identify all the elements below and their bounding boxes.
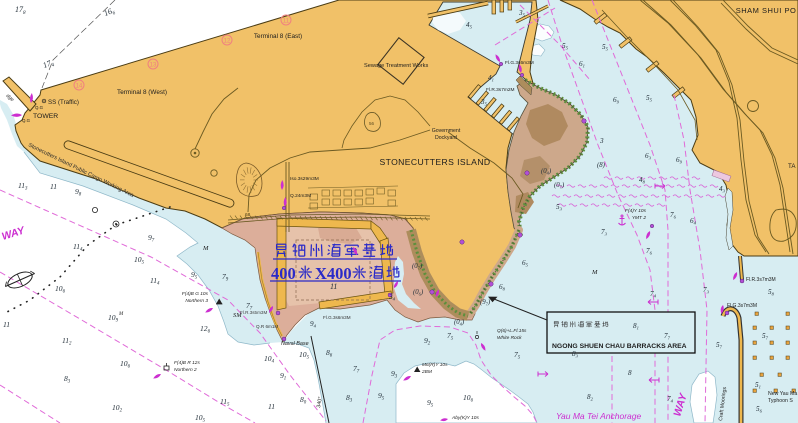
svg-text:56: 56 xyxy=(369,121,375,126)
svg-text:F(4)B R 12s: F(4)B R 12s xyxy=(174,360,200,366)
svg-text:2BM: 2BM xyxy=(421,369,432,375)
svg-text:Fl.R.3s5m3M: Fl.R.3s5m3M xyxy=(240,310,267,315)
svg-text:F(4)Y 10s: F(4)Y 10s xyxy=(625,208,647,214)
svg-text:X400: X400 xyxy=(315,264,352,283)
svg-text:11: 11 xyxy=(3,320,10,329)
svg-text:White Rock: White Rock xyxy=(497,335,522,341)
svg-text:SHAM SHUI PO: SHAM SHUI PO xyxy=(736,6,797,15)
svg-text:Terminal 8 (East): Terminal 8 (East) xyxy=(254,33,302,40)
svg-text:Q.24m3M: Q.24m3M xyxy=(290,193,311,199)
svg-text:3: 3 xyxy=(599,137,604,145)
svg-text:Fl.G.3s7m3M: Fl.G.3s7m3M xyxy=(727,303,757,309)
svg-text:(07): (07) xyxy=(554,182,565,190)
svg-text:Naval Base: Naval Base xyxy=(281,341,309,347)
svg-text:(04): (04) xyxy=(541,168,552,176)
svg-text:New Yau Ma: New Yau Ma xyxy=(768,391,797,397)
svg-text:11: 11 xyxy=(283,18,290,24)
svg-text:Q.G: Q.G xyxy=(35,105,44,110)
svg-text:Fl.G.3s6m3M: Fl.G.3s6m3M xyxy=(323,315,351,320)
svg-text:Northern 2: Northern 2 xyxy=(174,367,197,373)
svg-text:11: 11 xyxy=(268,402,275,411)
svg-text:Typhoon S: Typhoon S xyxy=(768,398,793,404)
svg-text:(07): (07) xyxy=(412,263,423,271)
svg-text:14: 14 xyxy=(76,83,83,89)
svg-text:(04): (04) xyxy=(454,319,465,327)
svg-text:12: 12 xyxy=(224,38,231,44)
svg-text:SS (Traffic): SS (Traffic) xyxy=(48,99,79,106)
svg-text:Government: Government xyxy=(432,128,461,134)
svg-text:TA: TA xyxy=(788,163,796,170)
svg-text:(97): (97) xyxy=(480,299,491,307)
svg-text:M: M xyxy=(118,312,124,317)
svg-text:TOWER: TOWER xyxy=(33,113,58,120)
svg-text:11: 11 xyxy=(330,282,337,291)
svg-text:(8): (8) xyxy=(597,162,606,169)
svg-text:Fl.R.3s7m2M: Fl.R.3s7m2M xyxy=(486,87,515,93)
svg-text:SM: SM xyxy=(233,312,242,319)
svg-text:400: 400 xyxy=(271,264,296,283)
svg-text:STONECUTTERS ISLAND: STONECUTTERS ISLAND xyxy=(379,157,490,167)
svg-text:Dockyard: Dockyard xyxy=(435,135,457,141)
svg-text:Q.G: Q.G xyxy=(22,118,31,123)
svg-text:68: 68 xyxy=(245,212,251,218)
svg-text:Q.R 6m1M: Q.R 6m1M xyxy=(256,324,278,329)
svg-text:F(4)B G 10s: F(4)B G 10s xyxy=(182,291,209,297)
svg-text:Yau Ma Tei Anchorage: Yau Ma Tei Anchorage xyxy=(556,411,641,421)
svg-text:M: M xyxy=(591,269,598,276)
svg-text:(06): (06) xyxy=(413,289,424,297)
svg-text:Q(6)+L.Fl.15s: Q(6)+L.Fl.15s xyxy=(497,328,527,334)
svg-text:Iso.3s29m3M: Iso.3s29m3M xyxy=(290,176,319,182)
svg-text:8: 8 xyxy=(628,369,632,377)
svg-text:Aby(K)Y 10s: Aby(K)Y 10s xyxy=(451,415,479,421)
svg-text:11: 11 xyxy=(50,182,57,191)
svg-text:Terminal 8 (West): Terminal 8 (West) xyxy=(117,89,167,96)
svg-text:13: 13 xyxy=(150,62,157,68)
svg-text:Fl.R.3s7m3M: Fl.R.3s7m3M xyxy=(746,277,776,283)
svg-text:M: M xyxy=(202,245,209,252)
svg-text:Northern 3: Northern 3 xyxy=(185,298,208,304)
svg-text:NGONG SHUEN CHAU BARRACKS AREA: NGONG SHUEN CHAU BARRACKS AREA xyxy=(552,343,687,350)
svg-text:Sewage Treatment Works: Sewage Treatment Works xyxy=(364,63,428,69)
svg-text:YMT 2: YMT 2 xyxy=(632,215,646,221)
svg-text:M6(R)Y 10s: M6(R)Y 10s xyxy=(422,362,448,368)
